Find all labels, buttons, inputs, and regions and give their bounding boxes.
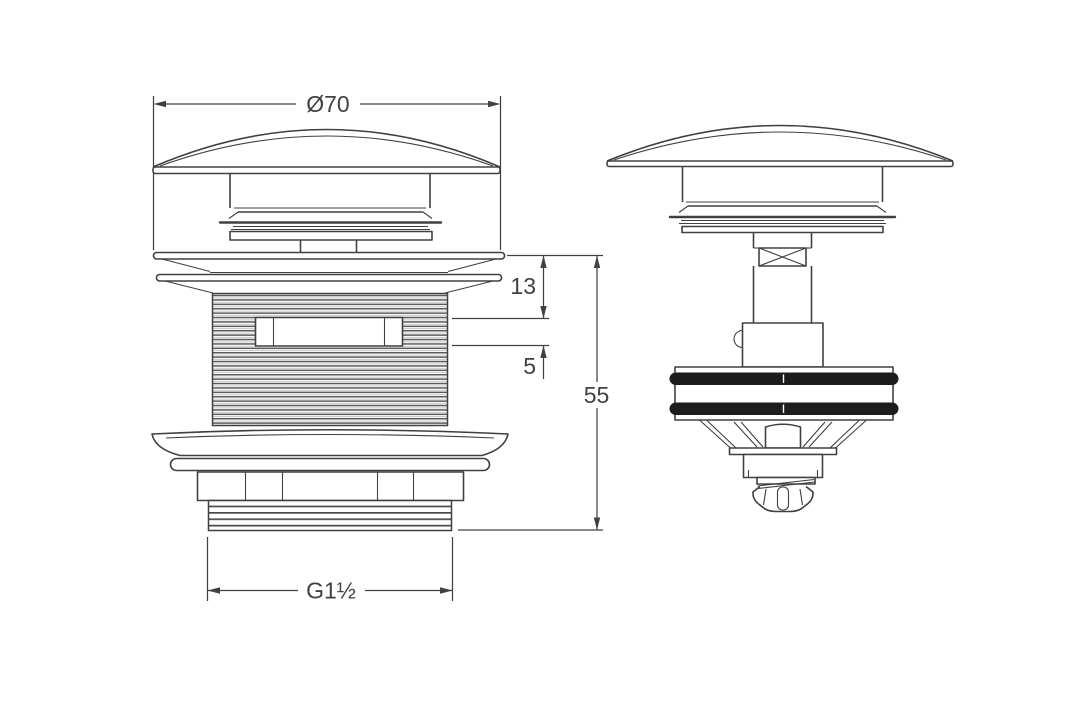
washer-plate — [230, 232, 432, 241]
overflow-slot — [256, 318, 403, 347]
dimension-label-cap-diameter: Ø70 — [306, 91, 349, 117]
dimension-label-slot-offset: 5 — [523, 353, 536, 379]
flange-plate-upper — [154, 253, 505, 260]
clip-housing — [744, 455, 823, 478]
center-boss — [766, 424, 801, 448]
guide-block — [734, 323, 823, 367]
cartridge-body — [670, 367, 899, 420]
tail-thread-section — [209, 501, 452, 531]
dimension-label-overall-height: 55 — [584, 382, 610, 408]
flange-bowl — [152, 430, 508, 456]
bottom-flange — [152, 430, 508, 471]
thread-section — [213, 294, 448, 426]
dimension-label-flange-height: 13 — [510, 273, 536, 299]
background — [0, 0, 1082, 728]
gasket-plate — [171, 459, 490, 471]
cap-rim — [153, 167, 500, 174]
guide-block-body — [743, 323, 824, 367]
technical-drawing-page: Ø70 — [0, 0, 1082, 728]
backnut-body — [198, 472, 464, 501]
washer-plate — [682, 227, 883, 233]
flange-plate-lower — [157, 275, 502, 282]
waste-drawing: Ø70 — [0, 0, 1082, 728]
threaded-body — [213, 294, 448, 426]
basket-plate — [730, 448, 837, 455]
cap-rim — [607, 161, 953, 167]
tail-thread — [209, 501, 452, 531]
backnut — [198, 472, 464, 501]
housing-block — [744, 455, 823, 478]
dimension-label-thread-size: G1½ — [306, 578, 356, 604]
